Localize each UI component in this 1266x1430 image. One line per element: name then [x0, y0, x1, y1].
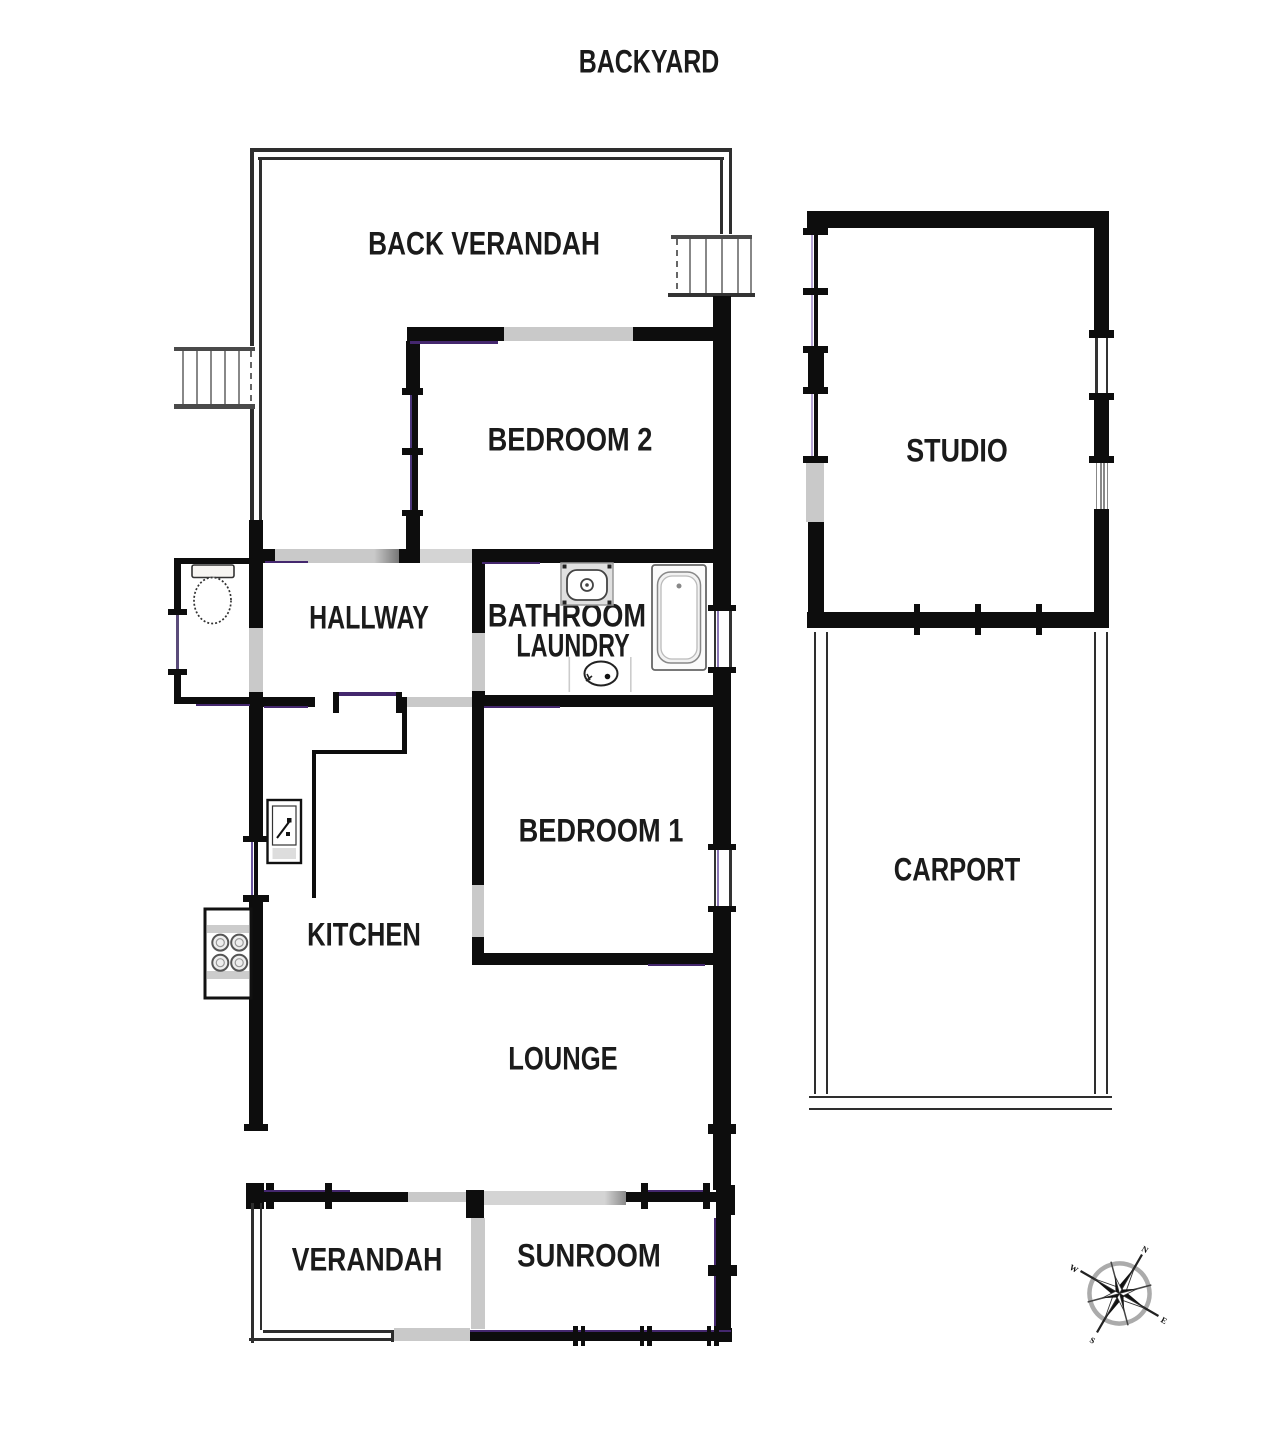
svg-text:S: S	[1088, 1335, 1097, 1346]
svg-text:E: E	[1159, 1315, 1169, 1327]
svg-text:N: N	[1140, 1243, 1151, 1255]
svg-text:W: W	[1068, 1262, 1081, 1275]
